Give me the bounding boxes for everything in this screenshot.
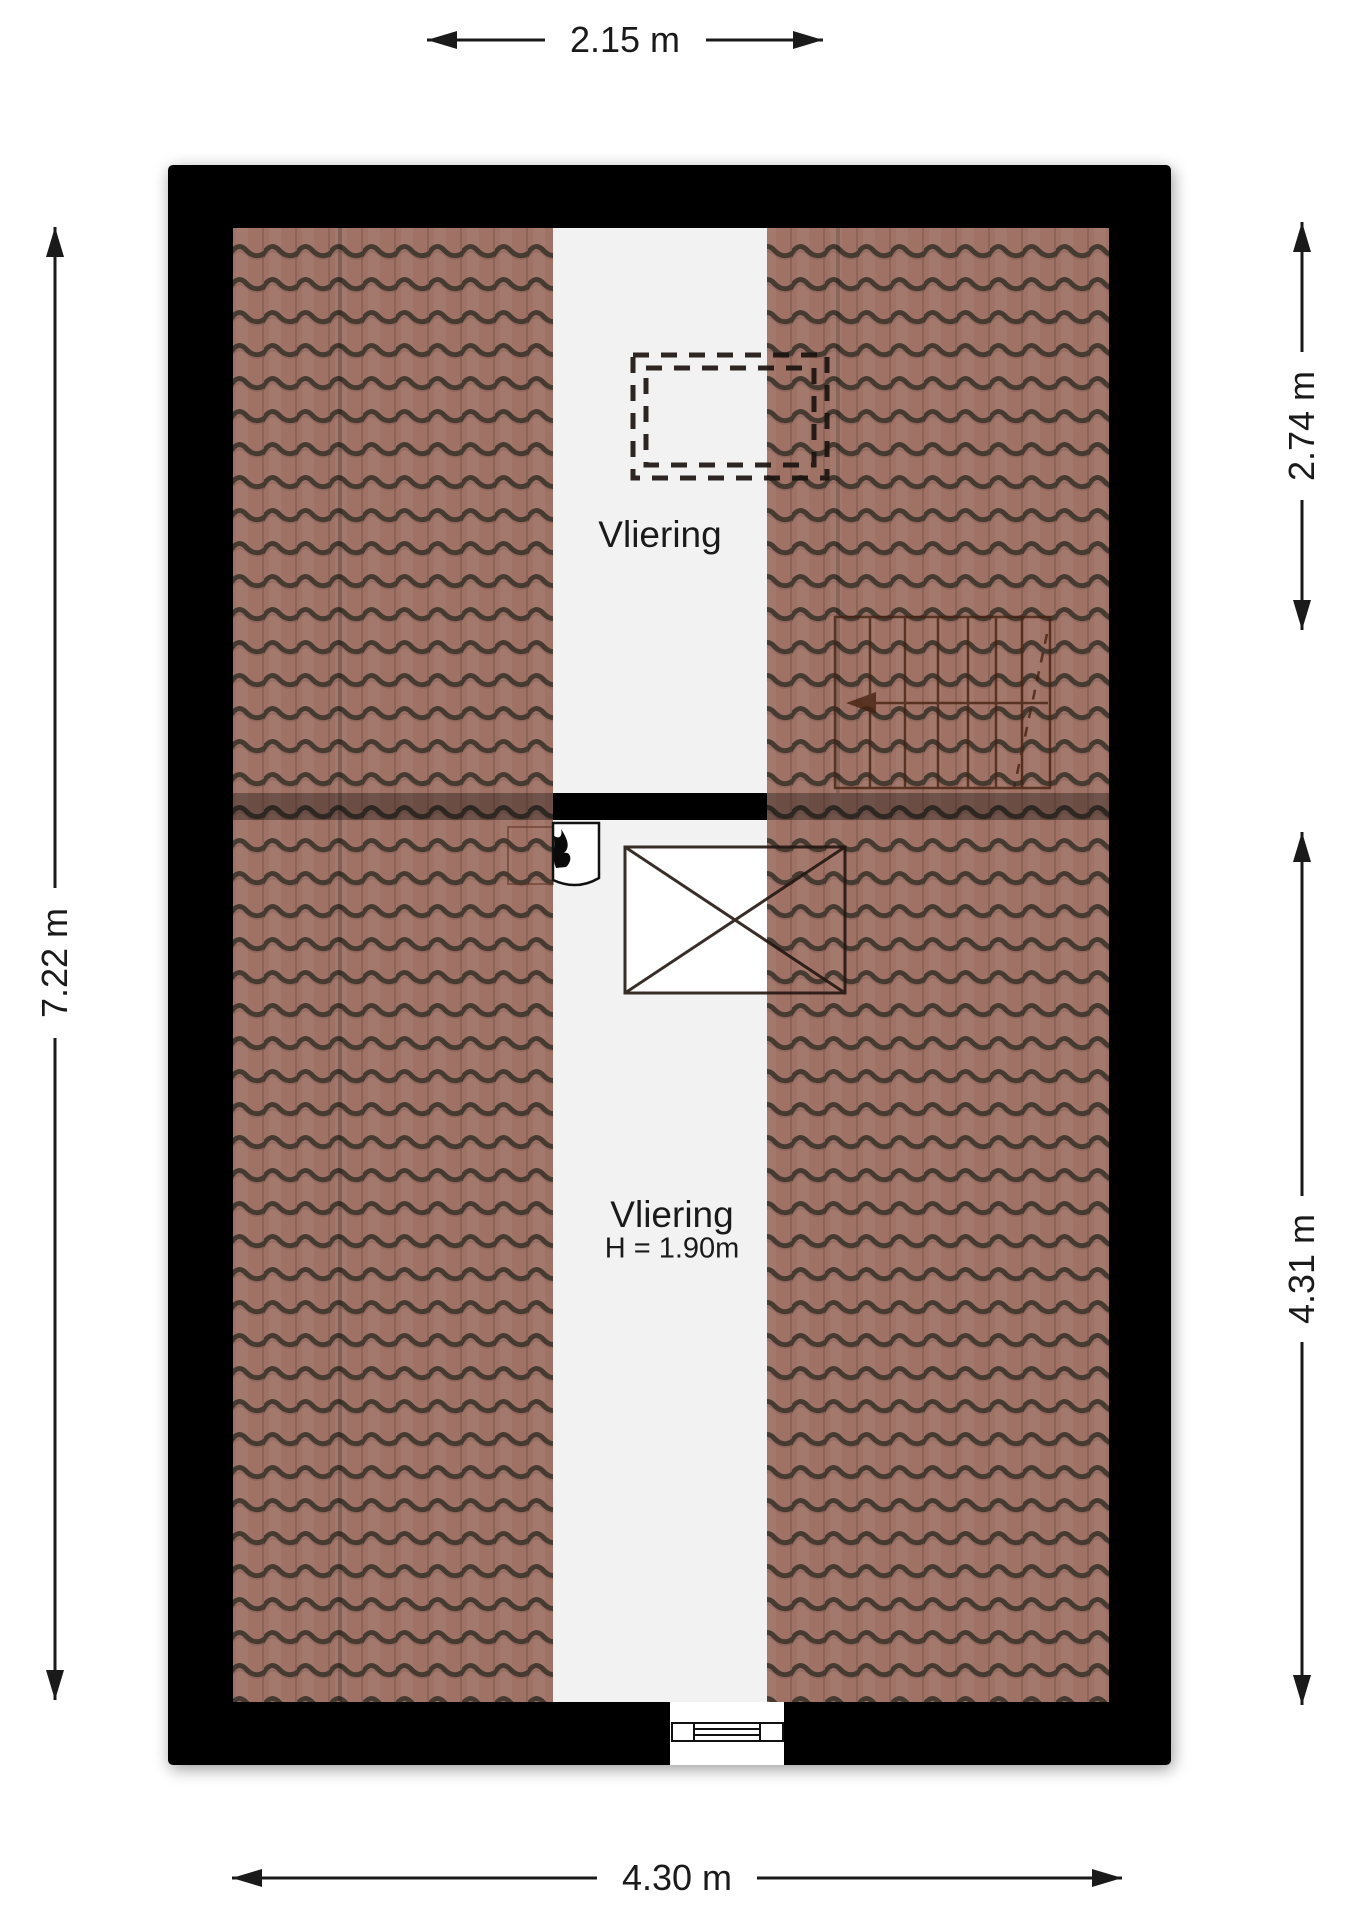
arrowhead-up-icon	[46, 227, 64, 257]
opening-white-area	[625, 847, 767, 993]
dimension-label-top: 2.15 m	[570, 19, 680, 61]
room-height-note: H = 1.90m	[605, 1233, 740, 1266]
arrowhead-down-icon	[46, 1670, 64, 1700]
floorplan-drawing	[0, 0, 1358, 1920]
roof-left	[233, 228, 553, 1702]
room-label-lower: Vliering	[610, 1194, 733, 1236]
arrowhead-left-icon	[427, 31, 457, 49]
arrowhead-up-icon	[1293, 222, 1311, 252]
divider-solid	[553, 793, 767, 820]
arrowhead-right-icon	[793, 31, 823, 49]
arrowhead-right-icon	[1092, 1869, 1122, 1887]
arrowhead-down-icon	[1293, 600, 1311, 630]
divider-under-roof-right	[767, 793, 1109, 820]
arrowhead-up-icon	[1293, 832, 1311, 862]
roof-right	[767, 228, 1109, 1702]
dimension-label-bottom: 4.30 m	[622, 1857, 732, 1899]
divider-wall	[233, 793, 1109, 820]
dimension-label-right-upper: 2.74 m	[1281, 371, 1323, 481]
dimension-label-right-lower: 4.31 m	[1281, 1214, 1323, 1324]
window-frame	[672, 1723, 783, 1741]
arrowhead-left-icon	[232, 1869, 262, 1887]
divider-under-roof-left	[233, 793, 553, 820]
floorplan-canvas: 2.15 m 7.22 m 2.74 m 4.31 m 4.30 m Vlier…	[0, 0, 1358, 1920]
dimension-label-left: 7.22 m	[34, 908, 76, 1018]
bottom-window	[670, 1702, 784, 1765]
arrowhead-down-icon	[1293, 1675, 1311, 1705]
room-label-upper: Vliering	[598, 514, 721, 556]
